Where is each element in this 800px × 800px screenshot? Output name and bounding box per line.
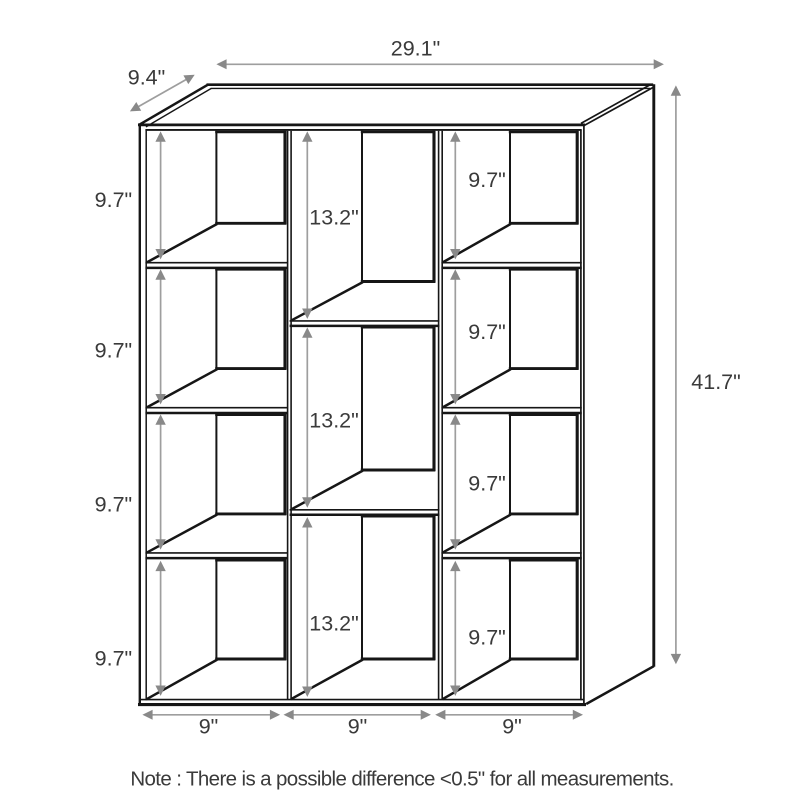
- svg-text:9": 9": [199, 714, 219, 738]
- svg-text:9.7": 9.7": [468, 625, 506, 649]
- svg-text:13.2": 13.2": [309, 409, 358, 433]
- svg-text:9.7": 9.7": [468, 168, 506, 192]
- svg-text:13.2": 13.2": [309, 612, 358, 636]
- svg-text:Note : There is a possible dif: Note : There is a possible difference <0…: [130, 767, 673, 790]
- svg-text:9.7": 9.7": [95, 188, 133, 212]
- svg-text:9.4": 9.4": [128, 66, 166, 90]
- svg-text:9.7": 9.7": [468, 320, 506, 344]
- svg-text:9": 9": [348, 714, 368, 738]
- svg-text:9.7": 9.7": [95, 493, 133, 517]
- svg-text:9.7": 9.7": [95, 339, 133, 363]
- svg-text:29.1": 29.1": [391, 37, 440, 61]
- svg-text:9.7": 9.7": [468, 472, 506, 496]
- svg-text:41.7": 41.7": [691, 370, 740, 394]
- svg-text:13.2": 13.2": [309, 206, 358, 230]
- svg-text:9.7": 9.7": [95, 647, 133, 671]
- svg-text:9": 9": [502, 714, 522, 738]
